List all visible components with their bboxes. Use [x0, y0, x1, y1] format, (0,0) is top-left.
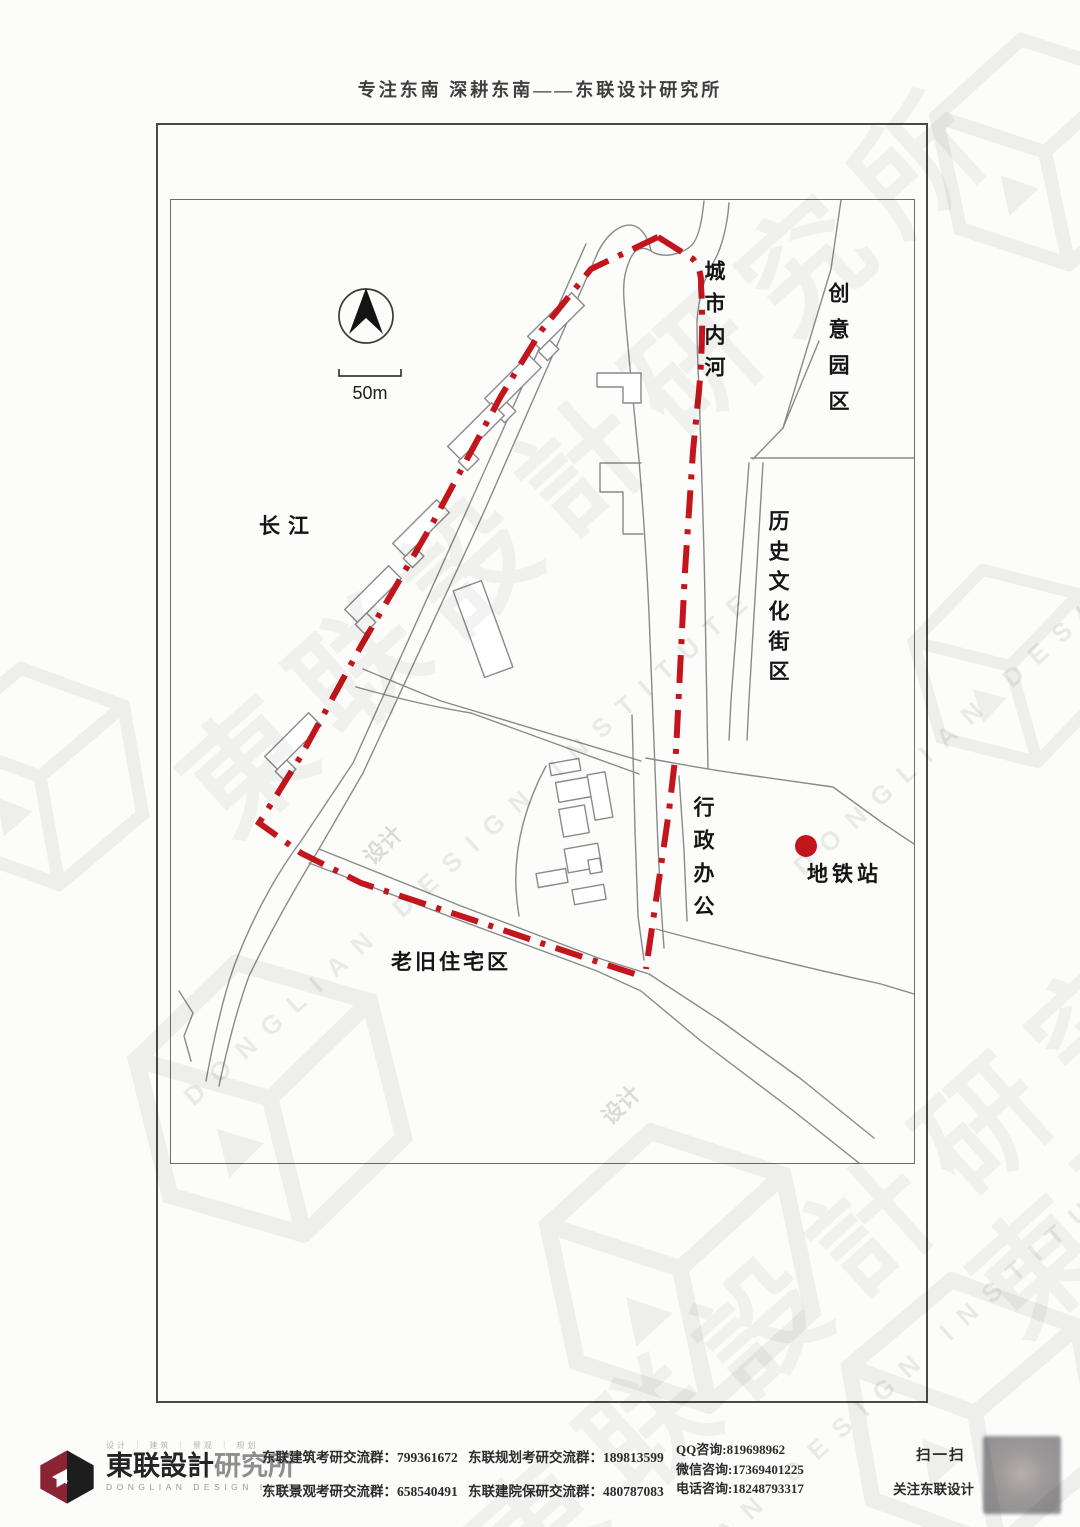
group-number: 189813599	[603, 1450, 664, 1465]
south-road-south-line	[309, 863, 859, 1163]
group-label: 东联建院保研交流群：	[468, 1484, 603, 1499]
site-map: 50m	[171, 200, 914, 1163]
cluster-building	[572, 884, 606, 904]
label-city-river: 城市内河	[703, 260, 724, 388]
pier-building	[263, 713, 331, 781]
footer: 设计 ｜ 建筑 ｜ 景观 ｜ 规划 東联設計研究所 DONGLIAN DESIG…	[0, 1432, 1080, 1527]
left-stub-road	[179, 991, 193, 1061]
group-label: 东联规划考研交流群：	[468, 1450, 603, 1465]
watermark-text-cn: 東联設計研究所	[925, 532, 1080, 1368]
contact-info: QQ咨询:819698962 微信咨询:17369401225 电话咨询:182…	[676, 1440, 804, 1499]
label-metro-station: 地铁站	[807, 864, 882, 885]
cluster-building	[587, 772, 613, 820]
follow-label: 关注东联设计	[893, 1478, 974, 1498]
contact-row: 微信咨询:17369401225	[676, 1460, 804, 1480]
contact-number: 819698962	[727, 1442, 786, 1457]
riverside-road	[632, 715, 644, 960]
contact-label: 微信咨询:	[676, 1462, 732, 1477]
cross-road-south	[356, 687, 639, 774]
label-yangtze-river: 长江	[259, 516, 317, 537]
map-frame: 50m 城市内河 创意园区 历史文化街区 行政办公 地铁站 长江 老旧住宅区	[170, 199, 915, 1164]
qq-group-row: 东联规划考研交流群：189813599	[468, 1446, 664, 1466]
metro-road-south	[656, 929, 914, 994]
qr-code-image	[983, 1436, 1061, 1514]
creative-road-2	[783, 341, 819, 428]
metro-station-dot	[795, 835, 817, 857]
contact-label: QQ咨询:	[676, 1442, 727, 1457]
cluster-arc-road	[516, 766, 546, 916]
group-label: 东联建筑考研交流群：	[262, 1450, 397, 1465]
scale-bar: 50m	[339, 369, 401, 403]
cluster-building	[588, 858, 602, 874]
admin-parcel-edge	[679, 776, 687, 921]
contact-number: 17369401225	[732, 1462, 804, 1477]
cluster-building	[536, 869, 568, 888]
north-arrow-icon	[339, 288, 393, 343]
contact-label: 电话咨询:	[676, 1481, 732, 1496]
scan-label: 扫一扫	[916, 1444, 966, 1465]
label-historic-block: 历史文化街区	[767, 510, 788, 690]
donglian-logo-cube-icon	[38, 1448, 96, 1506]
group-number: 658540491	[397, 1484, 458, 1499]
slim-building	[453, 581, 513, 678]
label-creative-park: 创意园区	[827, 282, 848, 426]
donglian-cube-watermark-icon	[907, 9, 1080, 295]
group-label: 东联景观考研交流群：	[262, 1484, 397, 1499]
donglian-cube-watermark-icon	[0, 643, 169, 911]
label-old-residential: 老旧住宅区	[391, 952, 511, 973]
qq-group-row: 东联建筑考研交流群：799361672	[262, 1446, 458, 1466]
l-shaped-building	[597, 373, 641, 403]
qq-group-row: 东联建院保研交流群：480787083	[468, 1480, 664, 1500]
contact-row: 电话咨询:18248793317	[676, 1479, 804, 1499]
label-admin-office: 行政办公	[692, 796, 713, 928]
historic-road-west-1	[729, 463, 749, 740]
historic-road-west-2	[747, 463, 763, 740]
scale-label: 50m	[352, 383, 387, 403]
creative-road-3	[753, 428, 783, 459]
page: 专注东南 深耕东南——东联设计研究所	[0, 0, 1080, 1527]
header-slogan: 专注东南 深耕东南——东联设计研究所	[0, 76, 1080, 102]
qq-group-row: 东联景观考研交流群：658540491	[262, 1480, 458, 1500]
metro-road-north	[646, 758, 914, 844]
group-number: 480787083	[603, 1484, 664, 1499]
contact-row: QQ咨询:819698962	[676, 1440, 804, 1460]
bank-notch	[600, 463, 643, 534]
logo-name-primary: 東联設計	[106, 1451, 214, 1481]
group-number: 799361672	[397, 1450, 458, 1465]
contact-number: 18248793317	[732, 1481, 804, 1496]
cluster-building	[559, 805, 589, 837]
pier-building	[343, 566, 411, 634]
cluster-building	[549, 758, 581, 775]
